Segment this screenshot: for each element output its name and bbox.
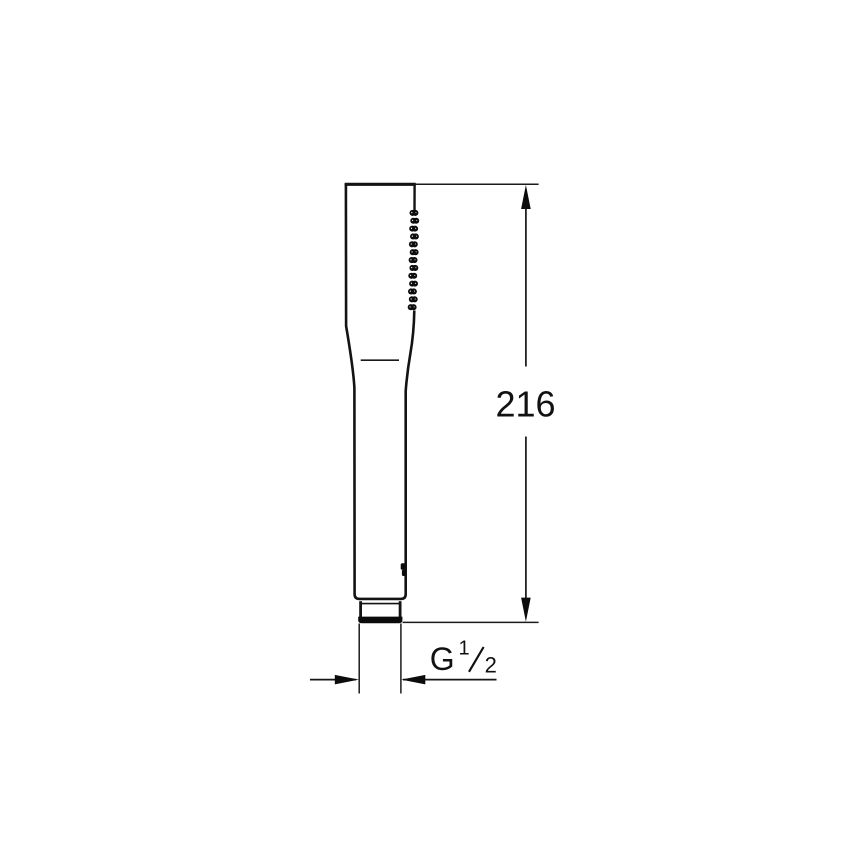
- svg-text:G: G: [430, 641, 455, 677]
- svg-text:2: 2: [485, 652, 497, 677]
- svg-text:1: 1: [459, 637, 470, 659]
- svg-text:216: 216: [495, 383, 555, 424]
